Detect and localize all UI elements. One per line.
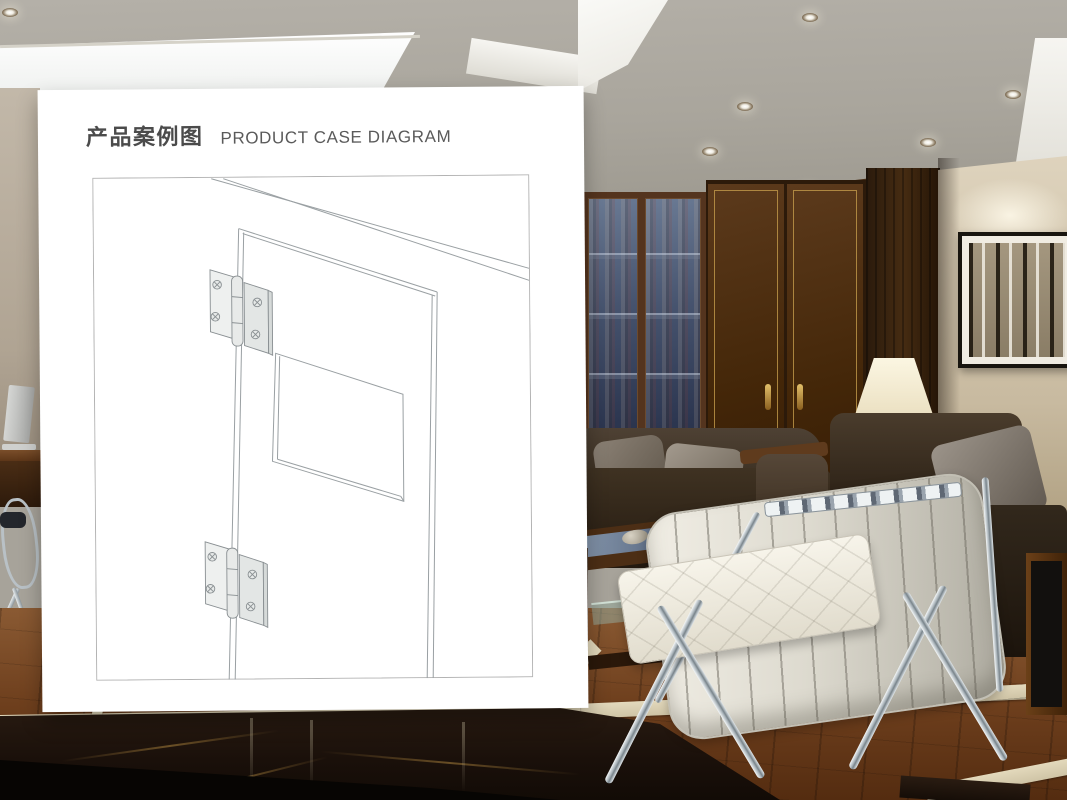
abstract-artwork xyxy=(958,232,1067,368)
downlight-icon xyxy=(2,8,18,17)
page-title: 产品案例图 PRODUCT CASE DIAGRAM xyxy=(86,117,452,152)
door-hinge-diagram xyxy=(92,174,533,680)
window-cutout xyxy=(272,352,404,502)
downlight-icon xyxy=(920,138,936,147)
door-handle xyxy=(797,384,803,410)
page-title-en: PRODUCT CASE DIAGRAM xyxy=(220,127,451,149)
downlight-icon xyxy=(1005,90,1021,99)
downlight-icon xyxy=(737,102,753,111)
hinge-top xyxy=(210,269,273,355)
door-handle xyxy=(765,384,771,410)
screenshot-root: 产品案例图 PRODUCT CASE DIAGRAM xyxy=(0,0,1067,800)
office-chair-seat xyxy=(0,512,26,528)
product-case-card: 产品案例图 PRODUCT CASE DIAGRAM xyxy=(38,86,589,712)
downlight-icon xyxy=(802,13,818,22)
armchair-wood-inset xyxy=(1031,561,1062,707)
desk xyxy=(0,450,46,461)
downlight-icon xyxy=(702,147,718,156)
artwork-canvas xyxy=(969,243,1065,357)
marble-reflection xyxy=(462,722,465,792)
armchair-wood-frame xyxy=(1026,553,1067,715)
hinge-bottom xyxy=(205,541,268,627)
office-chair xyxy=(0,496,43,590)
page-title-zh: 产品案例图 xyxy=(86,119,204,152)
wall-lines xyxy=(211,176,529,282)
